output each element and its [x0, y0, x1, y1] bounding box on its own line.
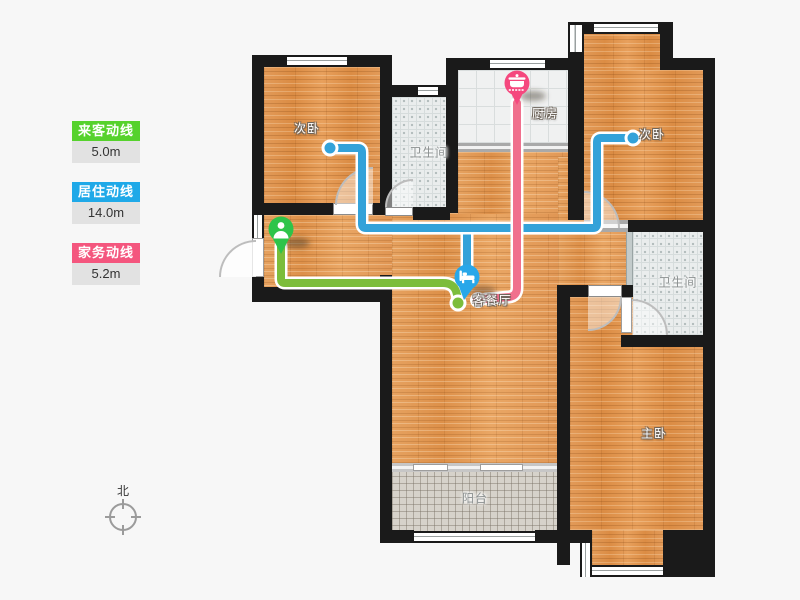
room-label-master-bedroom: 主卧	[641, 425, 667, 442]
entry-marker-pin[interactable]	[269, 217, 294, 255]
route-endpoint-bedroom-right	[626, 131, 640, 145]
room-label-bathroom-top: 卫生间	[409, 144, 448, 161]
route-chore-line	[486, 103, 517, 299]
route-endpoint-visitor	[451, 296, 465, 310]
route-visitor-line	[281, 246, 458, 298]
route-overlay: 北	[0, 0, 800, 600]
floor-plan-app: 来客动线 5.0m 居住动线 14.0m 家务动线 5.2m	[0, 0, 800, 600]
room-label-living-dining: 客餐厅	[472, 292, 511, 309]
compass	[105, 499, 141, 535]
route-living-line	[323, 131, 640, 272]
room-label-bathroom-right: 卫生间	[658, 274, 697, 291]
route-endpoint-bedroom-left	[323, 141, 337, 155]
room-label-bedroom-right: 次卧	[639, 126, 665, 143]
room-label-balcony: 阳台	[462, 490, 488, 507]
room-label-kitchen: 厨房	[532, 105, 558, 122]
compass-north-label: 北	[117, 484, 129, 498]
room-label-bedroom-left: 次卧	[294, 120, 320, 137]
